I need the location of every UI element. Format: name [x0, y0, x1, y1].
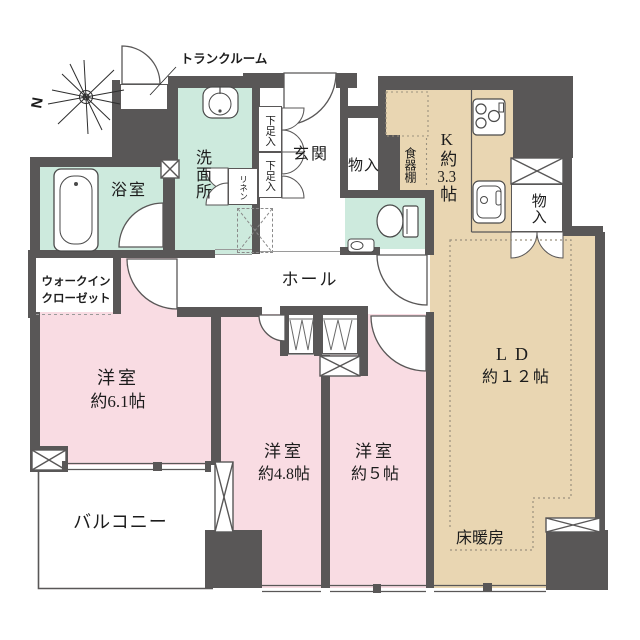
cupboard-label: 食器棚	[402, 141, 417, 189]
wall	[314, 310, 322, 356]
wall	[340, 73, 348, 198]
wall	[358, 306, 368, 376]
wall	[280, 306, 288, 356]
kitchen-label: K約3.3帖	[436, 120, 457, 212]
wall	[30, 312, 40, 468]
closet-bedroom3	[322, 314, 358, 354]
wall	[426, 312, 434, 588]
wall	[120, 108, 178, 163]
bedroom3-label: 洋室 約５帖	[330, 441, 420, 486]
wall	[30, 157, 40, 258]
bedroom3-label-line1: 洋室	[355, 442, 395, 461]
bedroom3-label-line2: 約５帖	[351, 466, 399, 483]
toilet-floor	[345, 198, 425, 249]
closet-bedroom2	[288, 314, 314, 354]
kitchen-label-suffix: 帖	[437, 185, 456, 203]
ld-label-line2: 約１２帖	[482, 369, 550, 386]
floor-plan: N トランクルーム 洗面所 浴室 ウォークイン クローゼット 玄関 下足入 下足…	[0, 0, 640, 640]
bedroom1-label: 洋室 約6.1帖	[73, 367, 163, 414]
shoe-door-arc	[282, 108, 304, 130]
kitchen-label-prefix: K約	[437, 130, 456, 168]
compass-north-label: N	[27, 92, 48, 115]
wall	[425, 195, 434, 255]
bedroom2-label-line1: 洋室	[264, 442, 304, 461]
genkan-label: 玄関	[287, 145, 335, 165]
bedroom1-label-line1: 洋室	[97, 368, 139, 388]
pillar	[205, 530, 262, 588]
trunk-room-label: トランクルーム	[172, 52, 276, 67]
washer-space	[237, 208, 273, 253]
storage-top-label: 物入	[340, 157, 388, 176]
entrance-door-arc	[284, 73, 336, 125]
wall	[378, 76, 515, 90]
wic-label: ウォークイン クローゼット	[30, 274, 122, 309]
floor-heating-label: 床暖房	[445, 529, 515, 549]
kitchen-label-num: 3.3	[437, 168, 456, 185]
trunk-room-box	[120, 84, 168, 110]
wall	[30, 446, 68, 472]
shoe-cabinet-label-2: 下足入	[263, 155, 276, 197]
wall	[28, 250, 215, 258]
bedroom2-label-line2: 約4.8帖	[258, 466, 310, 483]
wall	[112, 80, 120, 163]
wall	[340, 190, 434, 198]
wall	[285, 306, 368, 314]
wall	[168, 84, 178, 110]
linen-label: リネン	[238, 173, 249, 203]
wic-label-line1: ウォークイン	[42, 276, 111, 288]
wall	[513, 76, 573, 158]
bedroom1-label-line2: 約6.1帖	[90, 392, 145, 411]
wall	[595, 232, 605, 532]
pillar	[546, 530, 608, 590]
wall	[340, 247, 380, 255]
wall	[211, 312, 221, 465]
wall	[243, 73, 284, 88]
toilet-door-arc	[377, 255, 427, 305]
washroom-label: 洗面所	[191, 143, 211, 205]
bedroom1-entry-floor	[121, 258, 177, 314]
hall-label: ホール	[280, 269, 340, 290]
shaft-box	[511, 158, 563, 184]
shoe-door-arc	[282, 176, 304, 198]
ld-label-line1: LD	[496, 344, 536, 364]
shoe-cabinet-label-1: 下足入	[263, 110, 276, 152]
wall	[163, 157, 175, 254]
storage-right-label: 物入	[528, 187, 547, 231]
ld-label: LD 約１２帖	[468, 344, 564, 387]
bathroom-label: 浴室	[103, 181, 155, 201]
bedroom2-label: 洋室 約4.8帖	[239, 441, 329, 486]
balcony-label: バルコニー	[68, 511, 173, 534]
trunk-door-arc	[122, 46, 160, 84]
wic-label-line2: クローゼット	[42, 293, 111, 305]
